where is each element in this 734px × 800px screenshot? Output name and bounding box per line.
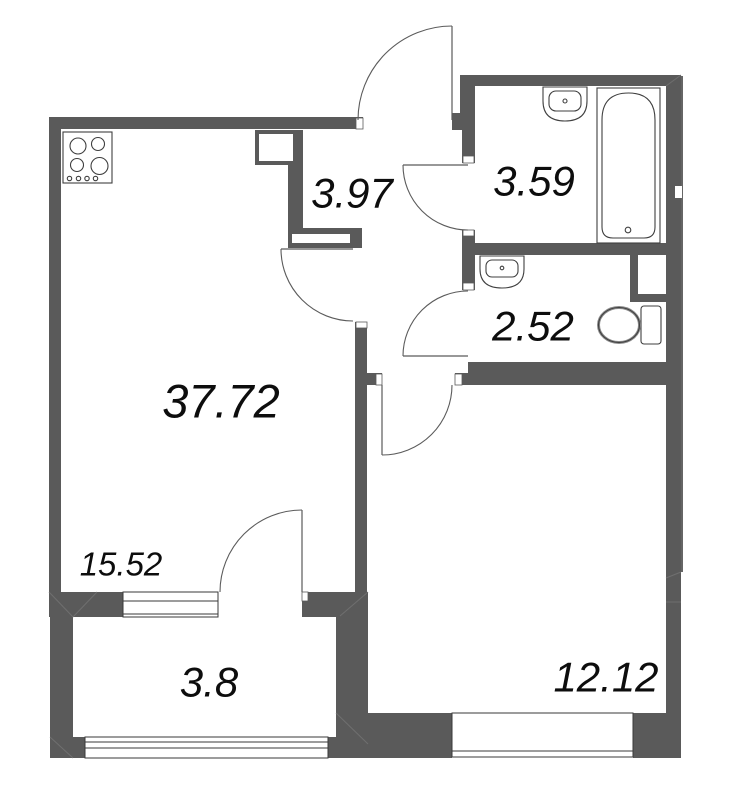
door-jamb — [463, 230, 474, 236]
door-jamb — [302, 592, 308, 601]
floorplan-canvas: 37.72 3.97 3.59 2.52 15.52 3.8 12.12 — [0, 0, 734, 800]
wall-notch — [675, 186, 682, 198]
door-jamb — [463, 283, 474, 290]
window-bedroom — [452, 713, 633, 757]
room-labels: 37.72 3.97 3.59 2.52 15.52 3.8 12.12 — [80, 158, 659, 706]
balcony-door — [220, 510, 302, 592]
room-label-living-zone: 15.52 — [80, 546, 163, 583]
door-jamb — [356, 322, 367, 328]
wall-segment — [302, 592, 368, 617]
door-jamb — [356, 118, 363, 129]
wall-segment — [452, 113, 462, 130]
duct-box — [257, 132, 295, 163]
window-living-zone — [123, 592, 218, 617]
wall-segment — [49, 117, 363, 129]
wall-segment — [50, 617, 73, 737]
wall-segment — [462, 86, 475, 163]
wall-opening-inset — [292, 234, 350, 243]
toilet-sink-icon — [480, 256, 524, 288]
wall-segment — [462, 243, 681, 255]
room-label-toilet: 2.52 — [491, 303, 574, 350]
toilet-icon — [599, 306, 662, 344]
living-room-door — [281, 249, 353, 321]
bathtub-icon — [597, 88, 660, 243]
door-jamb — [463, 156, 474, 163]
room-label-bathroom: 3.59 — [493, 158, 575, 205]
floorplan-drawing: 37.72 3.97 3.59 2.52 15.52 3.8 12.12 — [0, 0, 734, 800]
bath-sink-icon — [543, 87, 587, 121]
room-label-hallway: 3.97 — [311, 170, 394, 217]
wall-segment — [50, 737, 85, 758]
toilet-room-door — [403, 291, 468, 356]
wall-segment — [355, 322, 367, 592]
wall-segment — [336, 617, 368, 713]
room-label-living-kitchen: 37.72 — [162, 375, 280, 428]
wall-segment — [460, 75, 681, 86]
doors — [220, 26, 468, 592]
bedroom-door — [382, 385, 452, 455]
stove-icon — [63, 132, 112, 183]
wall-segment — [336, 713, 452, 758]
window-balcony — [85, 737, 328, 758]
entrance-door — [358, 26, 452, 120]
wall-segment — [49, 592, 123, 617]
door-jamb — [376, 374, 382, 385]
room-label-balcony: 3.8 — [180, 659, 239, 706]
duct-shaft-wall — [630, 294, 666, 302]
wall-segment — [468, 362, 681, 385]
wall-segment — [49, 117, 61, 592]
room-label-bedroom: 12.12 — [553, 654, 658, 701]
bathroom-door — [403, 165, 468, 230]
door-jamb — [455, 374, 462, 385]
